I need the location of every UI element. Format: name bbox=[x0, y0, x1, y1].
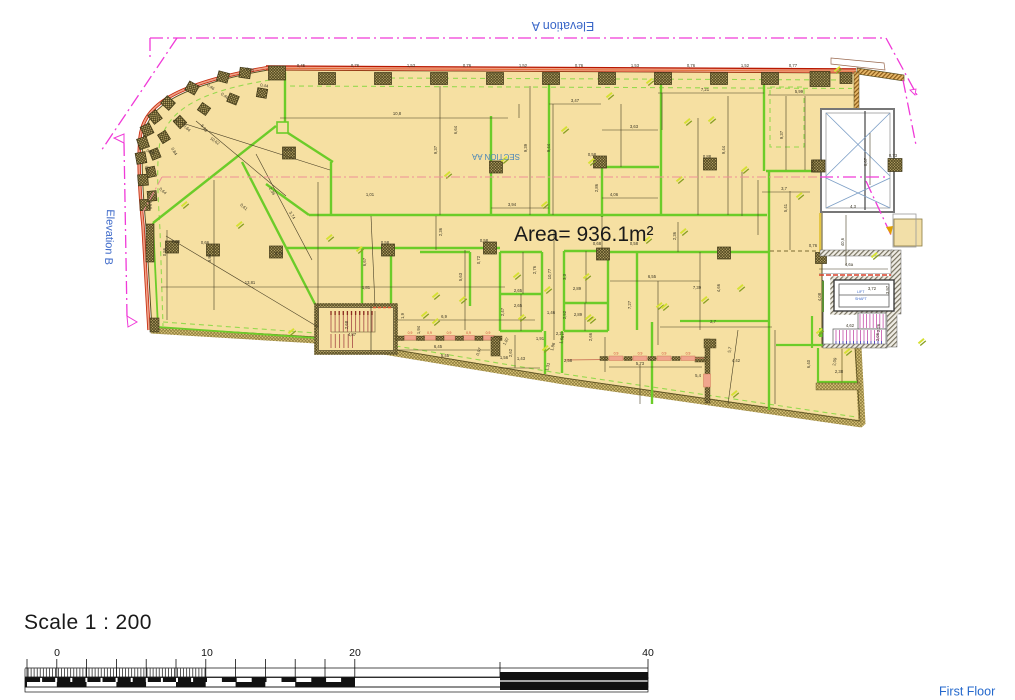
svg-text:0,9: 0,9 bbox=[447, 331, 452, 335]
svg-text:5,73: 5,73 bbox=[636, 361, 645, 366]
svg-text:0,63: 0,63 bbox=[284, 147, 293, 152]
svg-text:0,56: 0,56 bbox=[162, 247, 167, 256]
svg-text:0,76: 0,76 bbox=[351, 63, 360, 68]
svg-text:First Floor: First Floor bbox=[939, 685, 995, 699]
svg-text:10,77: 10,77 bbox=[547, 268, 552, 279]
svg-text:9,44: 9,44 bbox=[721, 145, 726, 154]
svg-text:6,67: 6,67 bbox=[863, 157, 868, 166]
svg-text:1,01: 1,01 bbox=[366, 192, 375, 197]
svg-text:0,77: 0,77 bbox=[789, 63, 798, 68]
svg-text:0,45: 0,45 bbox=[297, 63, 306, 68]
svg-text:13,81: 13,81 bbox=[245, 280, 256, 285]
svg-text:2,89: 2,89 bbox=[573, 286, 582, 291]
svg-text:2,66: 2,66 bbox=[588, 332, 593, 341]
svg-text:4,3: 4,3 bbox=[850, 204, 856, 209]
svg-text:0,76: 0,76 bbox=[463, 63, 472, 68]
svg-text:40: 40 bbox=[642, 647, 654, 659]
svg-text:1,81: 1,81 bbox=[362, 285, 371, 290]
svg-text:7,21: 7,21 bbox=[701, 87, 710, 92]
svg-text:2,89: 2,89 bbox=[574, 312, 583, 317]
svg-text:2,65: 2,65 bbox=[514, 288, 523, 293]
svg-text:1,46: 1,46 bbox=[547, 310, 556, 315]
svg-text:2,38: 2,38 bbox=[835, 369, 844, 374]
svg-text:10,8: 10,8 bbox=[393, 111, 402, 116]
svg-text:4,06: 4,06 bbox=[610, 192, 619, 197]
svg-text:0: 0 bbox=[54, 647, 60, 659]
svg-text:0,66: 0,66 bbox=[201, 240, 210, 245]
svg-text:3,72: 3,72 bbox=[868, 286, 877, 291]
svg-text:0,9: 0,9 bbox=[408, 331, 413, 335]
svg-text:6,40: 6,40 bbox=[806, 359, 811, 368]
svg-text:2,47: 2,47 bbox=[500, 307, 505, 316]
svg-text:2,26: 2,26 bbox=[876, 323, 881, 332]
svg-text:4,66: 4,66 bbox=[716, 283, 721, 292]
svg-text:0,72: 0,72 bbox=[476, 255, 481, 264]
svg-text:9,44: 9,44 bbox=[546, 143, 551, 152]
svg-text:3,63: 3,63 bbox=[630, 124, 639, 129]
svg-text:4,6a: 4,6a bbox=[845, 262, 854, 267]
svg-text:2,62: 2,62 bbox=[508, 348, 513, 357]
svg-text:0,88: 0,88 bbox=[703, 154, 712, 159]
svg-text:0,9: 0,9 bbox=[662, 352, 667, 356]
svg-text:2,86: 2,86 bbox=[594, 183, 599, 192]
svg-text:6,9: 6,9 bbox=[441, 314, 447, 319]
svg-text:2,76: 2,76 bbox=[532, 265, 537, 274]
svg-text:4,08: 4,08 bbox=[817, 292, 822, 301]
svg-text:1,53: 1,53 bbox=[631, 63, 640, 68]
svg-text:Elevation A: Elevation A bbox=[531, 19, 594, 33]
svg-text:SECTION AA: SECTION AA bbox=[471, 152, 520, 161]
svg-text:5,99: 5,99 bbox=[795, 89, 804, 94]
svg-text:SHAFT: SHAFT bbox=[855, 297, 868, 301]
svg-text:Scale 1 : 200: Scale 1 : 200 bbox=[24, 611, 152, 634]
svg-text:9,37: 9,37 bbox=[433, 145, 438, 154]
svg-text:0,9: 0,9 bbox=[466, 331, 471, 335]
svg-text:1,91: 1,91 bbox=[536, 336, 545, 341]
svg-text:2,58: 2,58 bbox=[564, 358, 573, 363]
svg-text:LIFT: LIFT bbox=[857, 290, 865, 294]
svg-text:2,06: 2,06 bbox=[875, 332, 880, 341]
svg-text:1,9: 1,9 bbox=[400, 312, 405, 318]
svg-text:6,55: 6,55 bbox=[648, 274, 657, 279]
svg-text:0,73: 0,73 bbox=[889, 153, 898, 158]
svg-text:4,87: 4,87 bbox=[348, 332, 357, 337]
svg-text:3,97: 3,97 bbox=[885, 285, 890, 294]
svg-text:2,36: 2,36 bbox=[672, 231, 677, 240]
svg-text:0,58: 0,58 bbox=[381, 240, 390, 245]
svg-text:0,9: 0,9 bbox=[486, 331, 491, 335]
svg-text:0,58: 0,58 bbox=[480, 238, 489, 243]
svg-text:5,45: 5,45 bbox=[441, 353, 450, 358]
svg-text:1,53: 1,53 bbox=[407, 63, 416, 68]
svg-text:10: 10 bbox=[201, 647, 213, 659]
svg-text:2,52: 2,52 bbox=[562, 310, 567, 319]
svg-text:0,9: 0,9 bbox=[638, 352, 643, 356]
svg-text:40,6: 40,6 bbox=[840, 237, 845, 246]
svg-text:9,39: 9,39 bbox=[523, 143, 528, 152]
svg-text:0,9: 0,9 bbox=[614, 352, 619, 356]
svg-text:1,52: 1,52 bbox=[741, 63, 750, 68]
svg-text:3,94: 3,94 bbox=[508, 202, 517, 207]
svg-text:0,76: 0,76 bbox=[687, 63, 696, 68]
svg-text:9,37: 9,37 bbox=[779, 130, 784, 139]
svg-text:1,56: 1,56 bbox=[500, 355, 509, 360]
svg-text:6,67: 6,67 bbox=[362, 257, 367, 266]
svg-text:2,65: 2,65 bbox=[514, 303, 523, 308]
svg-text:5,4: 5,4 bbox=[695, 373, 701, 378]
svg-text:0,9: 0,9 bbox=[427, 331, 432, 335]
svg-text:2,36: 2,36 bbox=[438, 227, 443, 236]
svg-text:0,76: 0,76 bbox=[809, 243, 818, 248]
svg-text:5,63: 5,63 bbox=[458, 272, 463, 281]
svg-text:0,76: 0,76 bbox=[575, 63, 584, 68]
svg-text:0,86: 0,86 bbox=[172, 239, 181, 244]
svg-text:1,43: 1,43 bbox=[517, 356, 526, 361]
svg-text:7,39: 7,39 bbox=[693, 285, 702, 290]
svg-text:3,3: 3,3 bbox=[562, 273, 567, 279]
svg-text:2,7: 2,7 bbox=[710, 319, 716, 324]
svg-text:0,78: 0,78 bbox=[275, 251, 284, 256]
svg-text:6,45: 6,45 bbox=[434, 344, 443, 349]
svg-text:4,42: 4,42 bbox=[732, 358, 741, 363]
svg-text:4,62: 4,62 bbox=[846, 323, 855, 328]
svg-text:5,41: 5,41 bbox=[783, 203, 788, 212]
svg-text:1,52: 1,52 bbox=[519, 63, 528, 68]
svg-text:7,27: 7,27 bbox=[627, 300, 632, 309]
svg-text:0,58: 0,58 bbox=[588, 152, 597, 157]
svg-text:2,68: 2,68 bbox=[344, 320, 349, 329]
svg-text:9,99: 9,99 bbox=[207, 253, 212, 262]
svg-text:20: 20 bbox=[349, 647, 361, 659]
svg-text:3,47: 3,47 bbox=[571, 98, 580, 103]
svg-text:6,64: 6,64 bbox=[453, 125, 458, 134]
svg-text:0,54: 0,54 bbox=[148, 201, 154, 210]
svg-text:0,9: 0,9 bbox=[686, 352, 691, 356]
svg-text:Elevation B: Elevation B bbox=[102, 209, 116, 265]
svg-text:3,7: 3,7 bbox=[781, 186, 787, 191]
svg-text:1,94: 1,94 bbox=[416, 325, 421, 334]
svg-text:Area= 936.1m²: Area= 936.1m² bbox=[514, 223, 654, 246]
